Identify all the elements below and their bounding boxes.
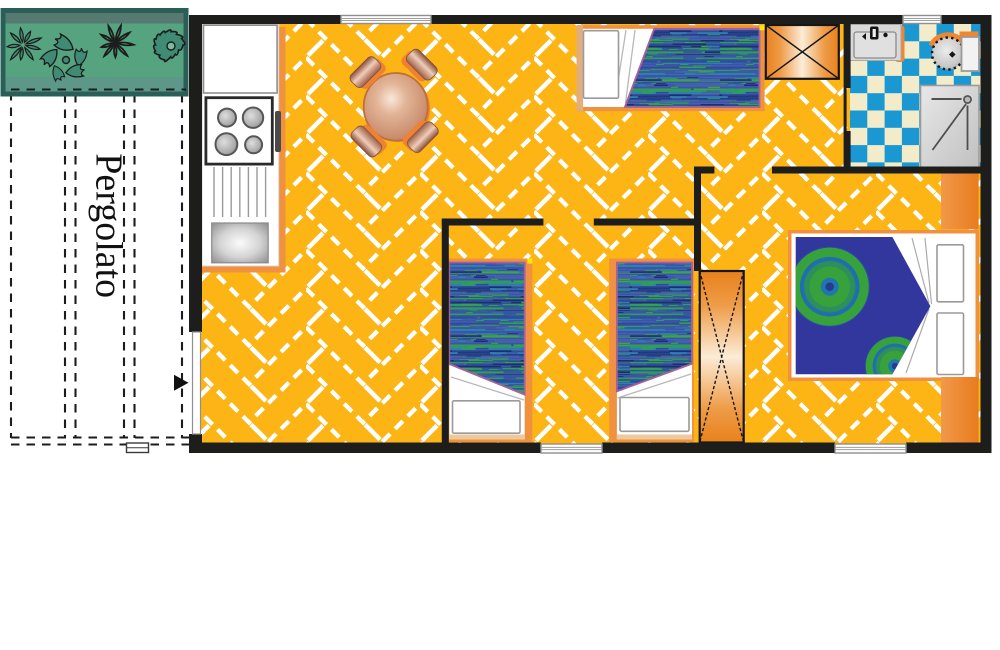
svg-text:Pergolato: Pergolato	[88, 153, 130, 298]
